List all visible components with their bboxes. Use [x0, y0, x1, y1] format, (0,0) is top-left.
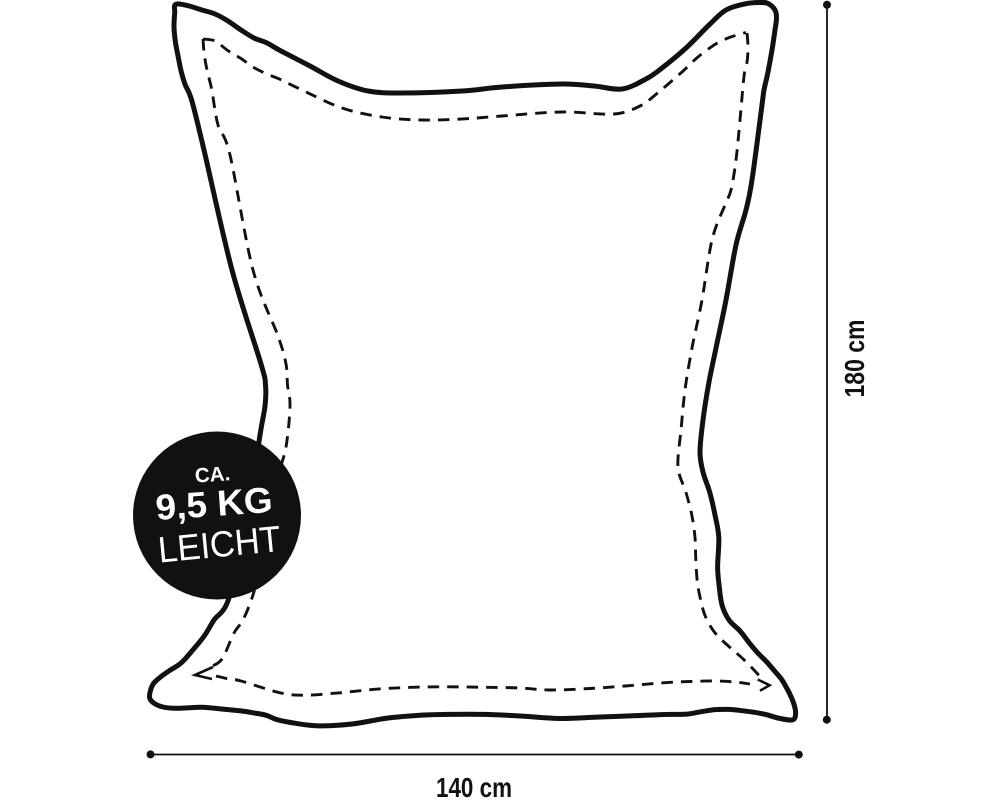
svg-text:180 cm: 180 cm — [839, 320, 870, 398]
svg-text:140 cm: 140 cm — [436, 772, 512, 800]
